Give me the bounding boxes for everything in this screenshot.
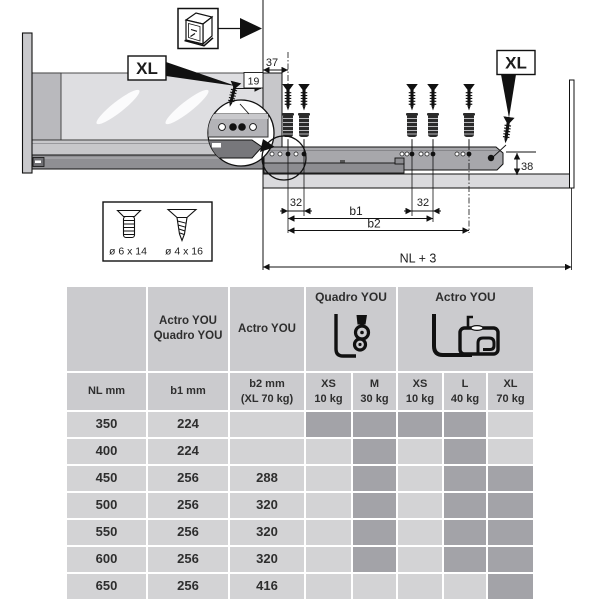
dim-b1: b1 [349,204,363,218]
availability-no [306,547,351,572]
direction-arrow-icon [240,18,262,39]
availability-yes [444,466,486,491]
availability-yes [488,466,533,491]
availability-yes [353,412,396,437]
nl-value: 650 [67,574,146,599]
header-b2-system: Actro YOU [230,287,304,371]
b1-value: 256 [148,547,228,572]
b1-value: 256 [148,493,228,518]
availability-yes [353,466,396,491]
nl-value: 500 [67,493,146,518]
screw-small-label: ø 4 x 16 [165,246,203,258]
availability-yes [488,547,533,572]
size-header-xs: XS10 kg [306,373,351,410]
availability-no [488,439,533,464]
availability-yes [353,520,396,545]
xl-label-left: XL [136,59,158,78]
b1-value: 256 [148,520,228,545]
b1-value: 256 [148,574,228,599]
dim-nl3: NL + 3 [400,252,437,266]
b2-value: 416 [230,574,304,599]
b2-value: 320 [230,547,304,572]
availability-yes [488,520,533,545]
actro-you-icon [426,310,506,365]
availability-no [398,547,442,572]
availability-no [398,574,442,599]
xl-callout-right: XL [493,51,535,158]
b1-value: 256 [148,466,228,491]
availability-yes [444,493,486,518]
group-header-quadro-you: Quadro YOU [306,287,396,371]
size-header-l: L40 kg [444,373,486,410]
availability-no [306,493,351,518]
size-header-xl: XL70 kg [488,373,533,410]
availability-no [444,574,486,599]
availability-no [306,439,351,464]
group-header-actro-you: Actro YOU [398,287,533,371]
b2-value [230,412,304,437]
availability-yes [353,547,396,572]
b2-value [230,439,304,464]
availability-yes [444,439,486,464]
availability-yes [444,547,486,572]
b2-value: 320 [230,493,304,518]
availability-no [306,466,351,491]
header-b1-systems: Actro YOU Quadro YOU [148,287,228,371]
spec-table: Actro YOU Quadro YOU Actro YOU Quadro YO… [67,287,533,599]
page: { "colors": { "header_bg": "#cbcbce", "c… [0,0,600,600]
dim-32-right: 32 [417,197,429,209]
availability-yes [488,574,533,599]
cabinet-bottom-panel [263,174,574,188]
nl-value: 400 [67,439,146,464]
size-header-m: M30 kg [353,373,396,410]
availability-no [306,520,351,545]
screw-large-label: ø 6 x 14 [109,246,147,258]
availability-yes [444,412,486,437]
nl-value: 550 [67,520,146,545]
dim-32-left: 32 [290,197,302,209]
availability-no [306,574,351,599]
col-header-b2: b2 mm (XL 70 kg) [230,373,304,410]
xl-label-right: XL [505,54,527,73]
screw-legend: ø 6 x 14 ø 4 x 16 [103,202,212,261]
quadro-you-icon [326,310,376,365]
dim-19: 19 [248,76,260,88]
col-header-b1: b1 mm [148,373,228,410]
availability-no [398,439,442,464]
header-corner-empty [67,287,146,371]
col-header-nl: NL mm [67,373,146,410]
availability-no [488,412,533,437]
availability-no [353,574,396,599]
availability-no [398,493,442,518]
availability-yes [306,412,351,437]
dim-37: 37 [266,57,278,69]
cabinet-back-edge [570,80,575,188]
nl-value: 350 [67,412,146,437]
dim-38: 38 [521,161,533,173]
size-header-xs: XS10 kg [398,373,442,410]
availability-yes [488,493,533,518]
nl-value: 600 [67,547,146,572]
mounting-screws [282,84,475,150]
b2-value: 288 [230,466,304,491]
b2-value: 320 [230,520,304,545]
drawer-runner [264,147,503,173]
availability-no [398,520,442,545]
b1-value: 224 [148,412,228,437]
availability-yes [353,439,396,464]
installation-diagram: XL XL 37 19 32 32 b1 b2 NL + 3 38 [0,0,600,284]
b1-value: 224 [148,439,228,464]
availability-no [398,466,442,491]
availability-yes [398,412,442,437]
dim-b2: b2 [367,217,381,231]
availability-yes [444,520,486,545]
nl-value: 450 [67,466,146,491]
availability-yes [353,493,396,518]
cabinet-icon [178,9,218,49]
